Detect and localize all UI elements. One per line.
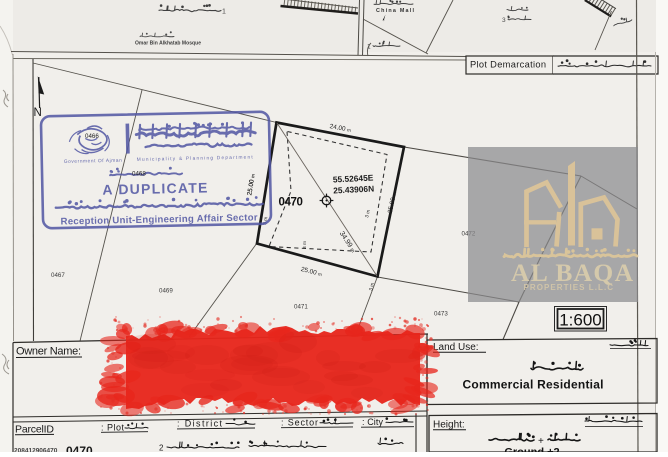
svg-text:A DUPLICATE: A DUPLICATE [102,179,208,197]
svg-text:1: 1 [222,9,226,16]
svg-text:25.43906N: 25.43906N [333,183,374,195]
svg-text:1:600: 1:600 [559,311,602,330]
svg-text:0468: 0468 [132,171,146,178]
svg-text:0471: 0471 [294,304,308,311]
svg-text:Ground +2: Ground +2 [504,447,559,453]
svg-text:3: 3 [502,17,506,24]
svg-text:PROPERTIES L.L.C: PROPERTIES L.L.C [524,283,615,292]
svg-text:1: 1 [367,44,371,51]
svg-text:0467: 0467 [51,272,65,279]
svg-text:Commercial Residential: Commercial Residential [463,378,604,392]
svg-text:0469: 0469 [159,288,173,295]
svg-text:: Plot: : Plot [101,423,124,433]
svg-text:: Sector: : Sector [281,418,318,428]
svg-text:Height:: Height: [433,420,465,431]
svg-text:208412906470: 208412906470 [14,448,58,453]
svg-text:Omar Bin Alkhatab Mosque: Omar Bin Alkhatab Mosque [135,41,201,47]
svg-text:0470: 0470 [279,197,303,209]
svg-text:Government Of Ajman: Government Of Ajman [64,158,122,165]
svg-text:Owner Name:: Owner Name: [16,346,81,358]
svg-text:ParcelID: ParcelID [15,424,54,436]
svg-text:Plot Demarcation: Plot Demarcation [470,60,546,70]
svg-text:55.52645E: 55.52645E [333,172,374,184]
svg-text:2: 2 [159,444,164,453]
svg-text:+: + [538,436,544,447]
svg-text:N: N [34,107,42,119]
svg-text:3 m: 3 m [302,241,308,249]
svg-text:Land Use:: Land Use: [433,342,479,353]
svg-text:: City: : City [362,417,384,427]
svg-text:0470: 0470 [66,444,93,452]
svg-text:0466: 0466 [85,133,99,140]
svg-text:0473: 0473 [434,311,448,318]
svg-text:: District: : District [177,419,222,429]
